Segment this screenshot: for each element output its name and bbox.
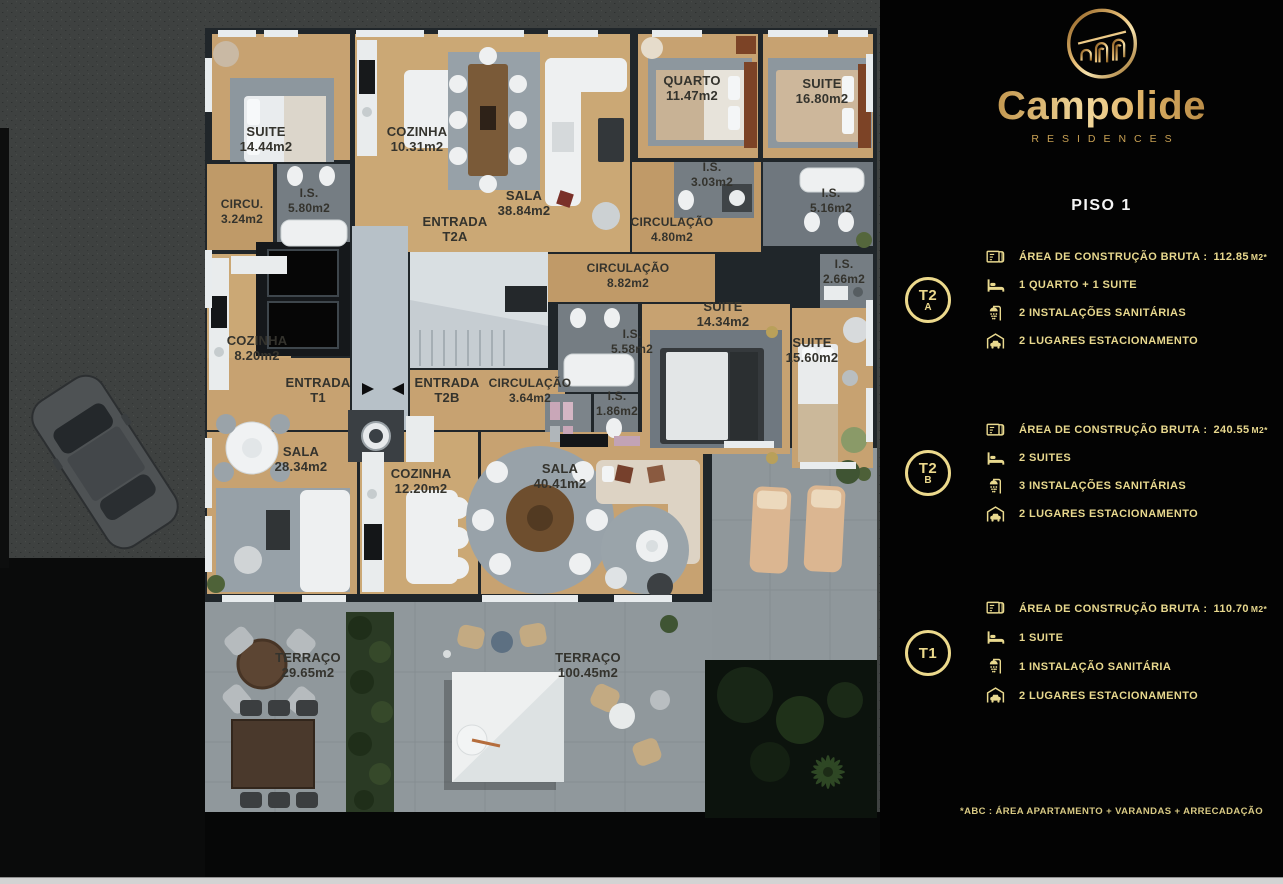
hedge [346,612,394,812]
room-area: 100.45m2 [558,665,618,680]
room-area: 29.65m2 [282,665,335,680]
brand-subtitle: RESIDENCES [920,133,1283,145]
footnote: *ABC : ÁREA APARTAMENTO + VARANDAS + ARR… [940,806,1283,817]
unit-block-t2b: T2 B ÁREA DE CONSTRUÇÃO BRUTA :240.55M2* [880,416,1283,528]
bed-icon [983,273,1007,297]
parking-row: 2 LUGARES ESTACIONAMENTO [983,327,1283,355]
room-area: 14.44m2 [240,139,293,154]
room-label: SALA [506,188,543,203]
room-area: T2B [434,390,459,405]
room-area: 5.80m2 [288,201,330,215]
room-label: I.S. [835,257,854,271]
room-label: I.S. [623,327,642,341]
room-label: ENTRADA [415,375,480,390]
bathrooms-row: 2 INSTALAÇÕES SANITÁRIAS [983,299,1283,327]
room-label: CIRCU. [221,197,264,211]
palm-tree [811,755,845,789]
room-label: TERRAÇO [275,650,341,665]
room-area: 12.20m2 [395,481,448,496]
room-area: 5.16m2 [810,201,852,215]
room-area: 8.20m2 [234,348,279,363]
bedrooms-row: 1 QUARTO + 1 SUITE [983,271,1283,299]
badge-type: T2 [919,461,938,476]
room-area: 4.80m2 [651,230,693,244]
area-unit: M2* [1251,425,1267,435]
room-label: SUITE [246,124,285,139]
garage-car-icon [983,502,1007,526]
room-label: SALA [283,444,320,459]
floorplan-icon [983,597,1007,621]
brand-name: Campolide [920,84,1283,129]
unit-badge-t1: T1 [905,630,951,676]
room-area: 3.64m2 [509,391,551,405]
floorplan-icon [983,245,1007,269]
info-panel: Campolide RESIDENCES PISO 1 T2 A ÁREA DE… [880,0,1283,884]
room-area: 10.31m2 [391,139,444,154]
area-label: ÁREA DE CONSTRUÇÃO BRUTA : [1019,251,1207,263]
floor-title: PISO 1 [920,197,1283,215]
unit-badge-t2a: T2 A [905,277,951,323]
badge-letter: B [924,476,931,486]
garage-car-icon [983,684,1007,708]
room-label: I.S. [300,186,319,200]
bed-icon [983,446,1007,470]
room-label: CIRCULAÇÃO [489,375,572,390]
garage-car-icon [983,329,1007,353]
room-label: ENTRADA [423,214,488,229]
area-value: 110.70 [1213,603,1248,615]
room-area: 15.60m2 [786,350,839,365]
room-area: 38.84m2 [498,203,551,218]
room-label: TERRAÇO [555,650,621,665]
room-label: I.S. [822,186,841,200]
room-label: CIRCULAÇÃO [631,214,714,229]
area-value: 240.55 [1213,424,1249,436]
room-label: I.S. [703,160,722,174]
room-label: ENTRADA [286,375,351,390]
badge-type: T2 [919,288,938,303]
unit-block-t2a: T2 A ÁREA DE CONSTRUÇÃO BRUTA :112.85M2* [880,243,1283,355]
bed-icon [983,626,1007,650]
bathrooms-row: 3 INSTALAÇÕES SANITÁRIAS [983,472,1283,500]
room-label: CIRCULAÇÃO [587,260,670,275]
room-label: COZINHA [227,333,288,348]
room-area: T1 [310,390,326,405]
room-area: 28.34m2 [275,459,328,474]
room-area: 14.34m2 [697,314,750,329]
room-label: SALA [542,461,579,476]
area-row: ÁREA DE CONSTRUÇÃO BRUTA :240.55M2* [983,416,1283,444]
room-area: T2A [442,229,468,244]
shower-icon [983,301,1007,325]
badge-letter: A [924,303,931,313]
room-label: SUITE [703,299,742,314]
garden-trees [705,660,877,818]
area-row: ÁREA DE CONSTRUÇÃO BRUTA :112.85M2* [983,243,1283,271]
floor-plan: SUITE 14.44m2 COZINHA 10.31m2 SALA 38.84… [0,0,880,884]
parking-row: 2 LUGARES ESTACIONAMENTO [983,681,1283,710]
window-edge-bar [0,877,1283,884]
parking-row: 2 LUGARES ESTACIONAMENTO [983,500,1283,528]
area-row: ÁREA DE CONSTRUÇÃO BRUTA :110.70M2* [983,594,1283,623]
area-unit: M2* [1251,252,1267,262]
room-label: COZINHA [387,124,448,139]
area-label: ÁREA DE CONSTRUÇÃO BRUTA : [1019,424,1207,436]
campolide-aqueduct-logo-icon [1061,6,1143,88]
room-area: 1.86m2 [596,404,638,418]
bedrooms-row: 1 SUITE [983,623,1283,652]
room-area: 8.82m2 [607,276,649,290]
room-area: 2.66m2 [823,272,865,286]
shower-icon [983,474,1007,498]
room-area: 11.47m2 [666,88,718,103]
room-area: 3.03m2 [691,175,733,189]
area-label: ÁREA DE CONSTRUÇÃO BRUTA : [1019,603,1207,615]
room-area: 40.41m2 [534,476,587,491]
unit-block-t1: T1 ÁREA DE CONSTRUÇÃO BRUTA :110.70M2* [880,594,1283,710]
area-unit: M2* [1251,604,1267,614]
room-label: SUITE [802,76,841,91]
room-label: QUARTO [663,73,720,88]
badge-type: T1 [919,646,938,661]
brand-block: Campolide RESIDENCES [920,6,1283,145]
room-label: SUITE [792,335,831,350]
room-area: 5.58m2 [611,342,653,356]
area-value: 112.85 [1213,251,1248,263]
room-area: 3.24m2 [221,212,263,226]
bathrooms-row: 1 INSTALAÇÃO SANITÁRIA [983,652,1283,681]
room-label: I.S. [608,389,627,403]
room-area: 16.80m2 [796,91,849,106]
unit-badge-t2b: T2 B [905,450,951,496]
floorplan-icon [983,418,1007,442]
shower-icon [983,655,1007,679]
bedrooms-row: 2 SUITES [983,444,1283,472]
room-label: COZINHA [391,466,452,481]
